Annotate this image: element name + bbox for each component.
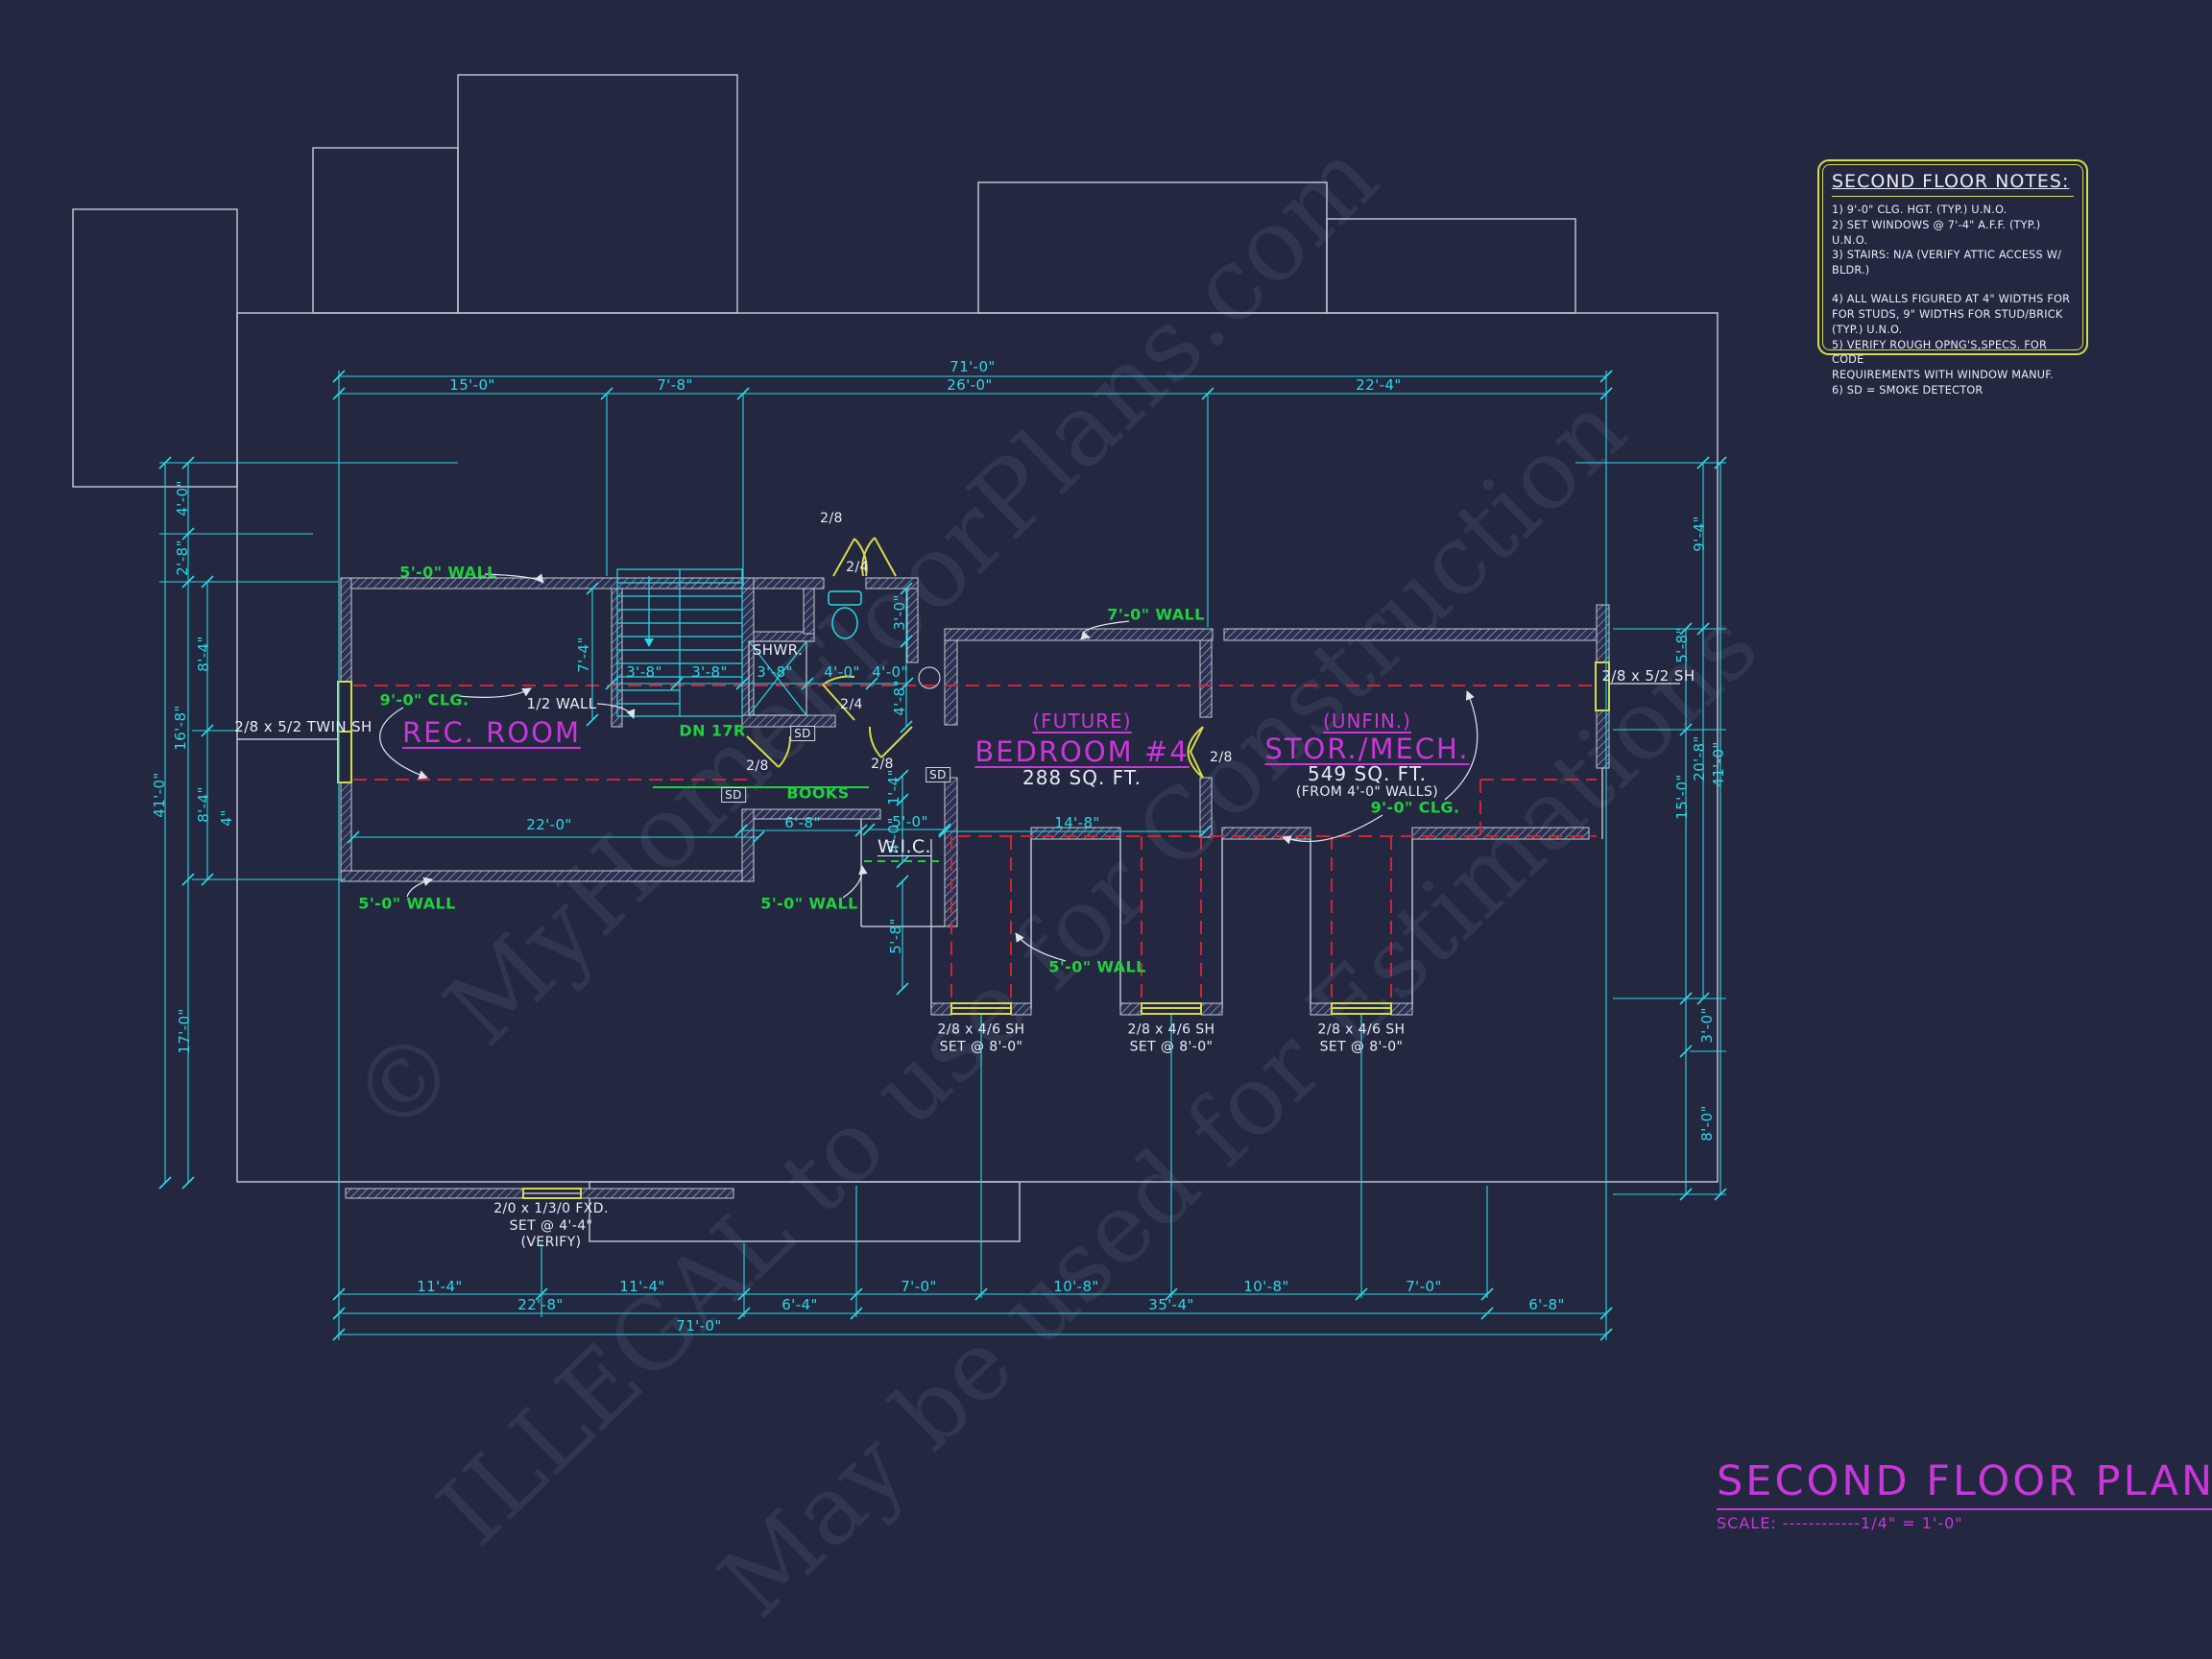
dim-left-5: 8'-4" (195, 786, 212, 823)
dim-bot-4: 10'-8" (1053, 1278, 1098, 1295)
note-item: 6) SD = SMOKE DETECTOR (1832, 383, 2074, 398)
dim-top-1: 15'-0" (449, 376, 494, 394)
win-label-dormer-2: 2/8 x 4/6 SH SET @ 8'-0" (1128, 1022, 1215, 1056)
plan-title: SECOND FLOOR PLAN (1717, 1457, 2212, 1510)
notes-items: 1) 9'-0" CLG. HGT. (TYP.) U.N.O.2) SET W… (1832, 203, 2074, 398)
win-label-dormer-1: 2/8 x 4/6 SH SET @ 8'-0" (938, 1022, 1025, 1056)
roof-outline (73, 75, 1718, 1241)
notes-title: SECOND FLOOR NOTES: (1832, 171, 2074, 197)
dim-right-4: 15'-0" (1673, 774, 1691, 819)
dim-right-3: 20'-8" (1691, 735, 1708, 781)
dim-bot-overall: 71'-0" (676, 1317, 721, 1334)
dim-right-overall: 41'-0" (1710, 741, 1727, 786)
room-label-bedroom: BEDROOM #4 (974, 735, 1189, 768)
dim-bot-5: 10'-8" (1243, 1278, 1288, 1295)
dim-bot-7: 22'-8" (517, 1296, 563, 1313)
dim-bath-3: 3'-0" (891, 594, 908, 631)
room-label-wic: W.I.C. (878, 836, 931, 857)
win-label-dormer-3: 2/8 x 4/6 SH SET @ 8'-0" (1318, 1022, 1406, 1056)
toilet-fixture (829, 591, 861, 638)
dim-bot-8: 6'-4" (781, 1296, 818, 1313)
dim-right-2: 5'-8" (1673, 627, 1691, 663)
door-label-hall: 2/8 (746, 758, 769, 774)
note-dn17r: DN 17R (679, 722, 745, 740)
dim-left-2: 2'-8" (174, 540, 191, 576)
note-books: BOOKS (786, 784, 849, 803)
note-item: 1) 9'-0" CLG. HGT. (TYP.) U.N.O. (1832, 203, 2074, 218)
room-area-stor: 549 SQ. FT. (1308, 762, 1427, 785)
plan-scale: SCALE: ------------1/4" = 1'-0" (1717, 1514, 2212, 1532)
note-wall-top: 5'-0" WALL (399, 564, 496, 582)
room-area-bedroom: 288 SQ. FT. (1022, 766, 1142, 789)
door-label-top1: 2/4 (846, 560, 869, 575)
dim-bath-1: 4'-0" (824, 663, 860, 681)
d-bed-width: 14'-8" (1054, 814, 1099, 831)
note-clg-rec: 9'-0" CLG. (380, 691, 469, 709)
door-label-top2: 2/8 (820, 511, 843, 526)
note-wall-bed-top: 7'-0" WALL (1107, 606, 1204, 624)
dim-wic-3: 5'-8" (887, 918, 904, 954)
sd-badge-2: SD (721, 787, 746, 803)
dim-left-7: 4" (218, 809, 235, 826)
room-label-shwr: SHWR. (753, 641, 803, 659)
dim-bot-6: 7'-0" (1406, 1278, 1442, 1295)
dim-left-1: 4'-0" (174, 480, 191, 517)
dim-right-6: 8'-0" (1698, 1105, 1716, 1142)
dim-right-5: 3'-0" (1698, 1007, 1716, 1044)
note-item: 4) ALL WALLS FIGURED AT 4" WIDTHS FOR FO… (1832, 292, 2074, 337)
win-label-right: 2/8 x 5/2 SH (1601, 667, 1695, 685)
door-label-wic: 2/8 (871, 757, 894, 772)
walls-hatched (341, 578, 1609, 1198)
door-label-bath: 2/4 (840, 697, 863, 712)
room-label-rec: REC. ROOM (402, 716, 581, 749)
dim-wic-1: 1'-4" (885, 769, 902, 805)
dim-rec-width: 22'-0" (526, 816, 571, 833)
title-block: SECOND FLOOR PLAN SCALE: ------------1/4… (1717, 1457, 2212, 1532)
win-label-twin: 2/8 x 5/2 TWIN SH (234, 718, 372, 735)
dim-bath-2: 4'-0" (872, 663, 908, 681)
dim-bot-1: 11'-4" (417, 1278, 462, 1295)
note-item: 3) STAIRS: N/A (VERIFY ATTIC ACCESS W/ B… (1832, 248, 2074, 278)
dim-stair-height: 7'-4" (575, 637, 592, 673)
dim-top-overall: 71'-0" (950, 358, 995, 375)
dim-top-2: 7'-8" (657, 376, 693, 394)
dim-bot-2: 11'-4" (619, 1278, 664, 1295)
note-half-wall: 1/2 WALL (526, 695, 596, 712)
dim-left-overall: 41'-0" (151, 772, 168, 817)
dim-shwr: 3'-8" (757, 663, 793, 681)
dim-stair-1: 3'-8" (626, 663, 662, 681)
note-item: 2) SET WINDOWS @ 7'-4" A.F.F. (TYP.) U.N… (1832, 218, 2074, 249)
floorplan-sheet: © MyHomeFloorPlans.com ILLEGAL to use fo… (0, 0, 2212, 1659)
sd-badge-3: SD (926, 767, 950, 782)
win-label-fxd: 2/0 x 1/3/0 FXD. SET @ 4'-4" (VERIFY) (493, 1201, 609, 1252)
sd-badge-1: SD (790, 726, 815, 741)
note-wall-c: 5'-0" WALL (760, 895, 857, 913)
staircase (617, 569, 742, 716)
room-label-bedroom-future: (FUTURE) (1032, 709, 1131, 733)
dim-bot-3: 7'-0" (901, 1278, 937, 1295)
dim-top-4: 22'-4" (1356, 376, 1401, 394)
dim-bot-9: 35'-4" (1148, 1296, 1193, 1313)
dim-right-1: 9'-4" (1691, 516, 1708, 552)
dim-left-6: 17'-0" (176, 1008, 193, 1053)
door-label-bedroom: 2/8 (1210, 750, 1233, 765)
note-item: 5) VERIFY ROUGH OPNG'S,SPECS. FOR CODE R… (1832, 338, 2074, 383)
room-label-stor: STOR./MECH. (1264, 733, 1469, 765)
dim-books: 6'-8" (784, 814, 821, 831)
note-clg-stor: 9'-0" CLG. (1371, 799, 1460, 817)
dim-bot-10: 6'-8" (1528, 1296, 1565, 1313)
dim-left-4: 16'-8" (172, 705, 189, 750)
dim-top-3: 26'-0" (947, 376, 992, 394)
dim-left-3: 8'-4" (195, 636, 212, 672)
room-label-stor-unfin: (UNFIN.) (1323, 709, 1411, 733)
dim-stair-2: 3'-8" (691, 663, 728, 681)
notes-box-inner: SECOND FLOOR NOTES: 1) 9'-0" CLG. HGT. (… (1822, 164, 2083, 350)
dim-bath-4: 4'-8" (891, 680, 908, 716)
note-wall-bed: 5'-0" WALL (1048, 958, 1145, 976)
note-wall-bl: 5'-0" WALL (358, 895, 455, 913)
notes-box: SECOND FLOOR NOTES: 1) 9'-0" CLG. HGT. (… (1817, 159, 2088, 355)
